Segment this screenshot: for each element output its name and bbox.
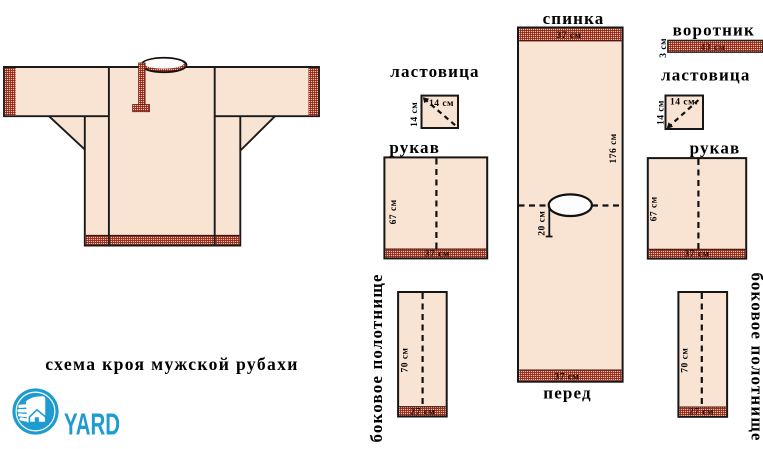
svg-text:YARD: YARD <box>64 407 120 441</box>
svg-text:ластовица: ластовица <box>661 66 750 85</box>
svg-text:ластовица: ластовица <box>390 62 479 81</box>
svg-text:боковое полотнище: боковое полотнище <box>367 273 386 442</box>
svg-text:14 см: 14 см <box>410 102 420 127</box>
svg-text:20 см: 20 см <box>538 211 548 236</box>
svg-text:176 см: 176 см <box>609 133 619 163</box>
svg-text:рукав: рукав <box>389 138 440 157</box>
svg-text:37 см: 37 см <box>556 31 581 41</box>
svg-text:27 см: 27 см <box>410 407 435 417</box>
svg-text:боковое полотнище: боковое полотнище <box>748 272 763 441</box>
svg-text:67 см: 67 см <box>650 196 660 221</box>
svg-text:27 см: 27 см <box>689 408 714 418</box>
svg-text:37 см: 37 см <box>684 250 709 260</box>
svg-text:67 см: 67 см <box>389 199 399 224</box>
svg-text:37 см: 37 см <box>554 373 579 383</box>
svg-text:спинка: спинка <box>543 9 605 28</box>
svg-text:37 см: 37 см <box>425 250 450 260</box>
svg-text:70 см: 70 см <box>680 348 690 373</box>
svg-text:схема кроя мужской рубахи: схема кроя мужской рубахи <box>45 354 299 374</box>
svg-text:70 см: 70 см <box>400 347 410 372</box>
svg-text:перед: перед <box>543 384 591 403</box>
svg-text:14 см: 14 см <box>429 99 454 109</box>
svg-text:43 см: 43 см <box>700 43 725 53</box>
svg-text:14 см: 14 см <box>657 100 667 125</box>
svg-text:воротник: воротник <box>673 21 755 40</box>
svg-text:3 см: 3 см <box>659 38 669 58</box>
svg-text:рукав: рукав <box>690 138 741 157</box>
svg-text:14 см.: 14 см. <box>670 98 698 108</box>
